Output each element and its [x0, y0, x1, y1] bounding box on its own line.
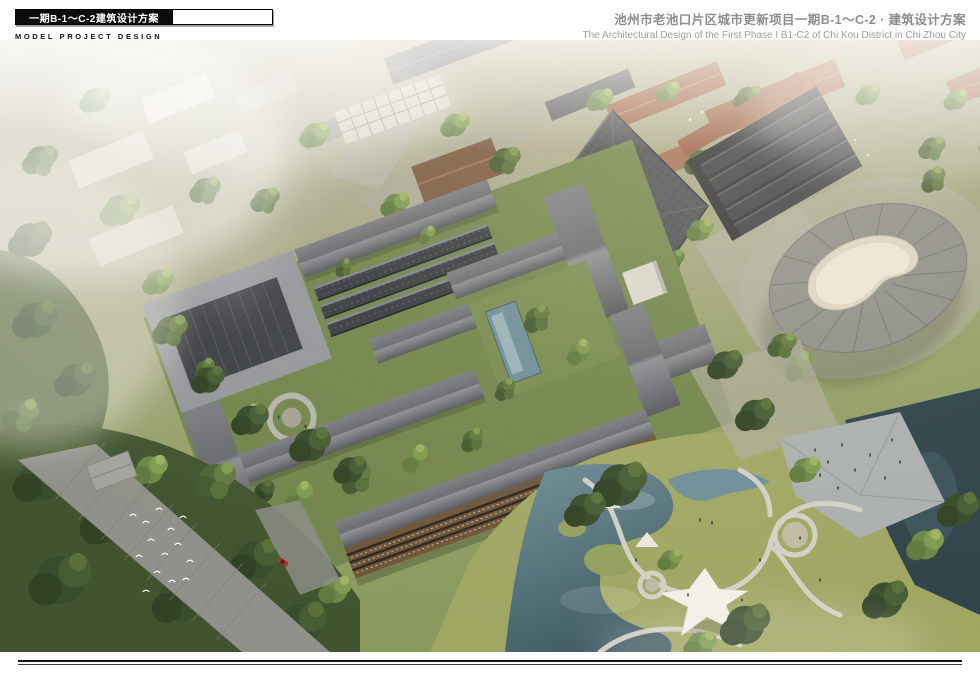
header-left: 一期B-1～C-2建筑设计方案 MODEL PROJECT DESIGN — [15, 9, 315, 41]
page-title: 一期B-1～C-2建筑设计方案 — [16, 10, 172, 24]
title-box: 一期B-1～C-2建筑设计方案 — [15, 9, 273, 25]
title-index-box — [172, 10, 272, 24]
project-title-cn: 池州市老池口片区城市更新项目一期B-1～C-2 · 建筑设计方案 — [583, 9, 967, 28]
header-right: 池州市老池口片区城市更新项目一期B-1～C-2 · 建筑设计方案 The Arc… — [583, 9, 967, 41]
footer-rule-thin — [18, 664, 962, 665]
fog-overlays — [0, 40, 980, 652]
aerial-rendering-image — [0, 40, 980, 652]
aerial-rendering-svg — [0, 40, 980, 652]
footer-rule — [18, 660, 962, 662]
